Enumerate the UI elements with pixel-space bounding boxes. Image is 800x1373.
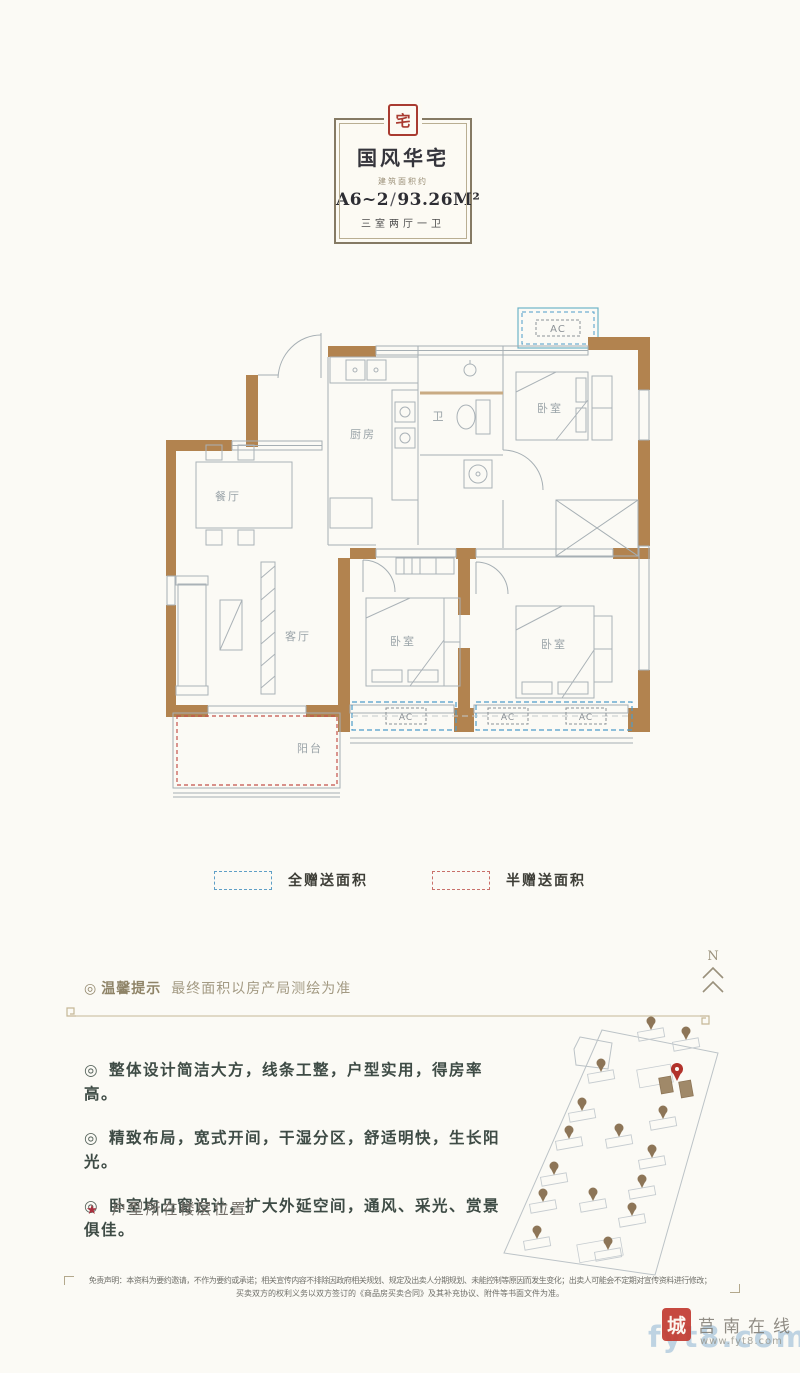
legend-item-full-gift: 全赠送面积	[214, 870, 368, 890]
header-card: 宅 国风华宅 建筑面积约 A6~2/93.26M² 三室两厅一卫	[334, 118, 472, 244]
floorplan-poster: 宅 国风华宅 建筑面积约 A6~2/93.26M² 三室两厅一卫 AC	[0, 0, 800, 1373]
watermark-seal-icon: 城	[662, 1308, 691, 1341]
highlighted-building	[659, 1076, 694, 1098]
header-card-inner-border	[339, 123, 467, 239]
ac-label-1: AC	[399, 713, 413, 723]
floorplan-drawing: AC	[158, 300, 658, 800]
site-plan	[490, 1015, 742, 1277]
room-label-kitchen: 厨房	[350, 428, 376, 441]
seal-icon: 宅	[388, 104, 418, 136]
feature-text-2: 精致布局，宽式开间，干湿分区，舒适明快，生长阳光。	[84, 1128, 500, 1171]
ac-label-2: AC	[501, 713, 515, 723]
warm-tip: ◎温馨提示最终面积以房产局测绘为准	[84, 978, 351, 998]
watermark-site-url: www.fyt8.com	[700, 1336, 783, 1347]
feature-text-1: 整体设计简洁大方，线条工整，户型实用，得房率高。	[84, 1060, 483, 1103]
disclaimer-line-1: 免责声明：本资料为要约邀请，不作为要约或承诺；相关宣传内容不排除因政府相关规划、…	[40, 1274, 760, 1287]
structure-lines	[167, 333, 649, 797]
feature-bullet-icon: ◎	[84, 1129, 99, 1147]
feature-item: ◎精致布局，宽式开间，干湿分区，舒适明快，生长阳光。	[84, 1126, 504, 1173]
feature-bullet-icon: ◎	[84, 1061, 99, 1079]
floor-location-caption: ★户型所在楼层位置	[86, 1198, 248, 1219]
room-label-bath: 卫	[433, 410, 446, 423]
room-label-bedroom2: 卧室	[390, 634, 416, 648]
tip-title: 温馨提示	[101, 981, 161, 997]
legend: 全赠送面积 半赠送面积	[0, 870, 800, 890]
watermark: fyt8.com 城 莒南在线 www.fyt8.com	[652, 1292, 800, 1373]
feature-item: ◎整体设计简洁大方，线条工整，户型实用，得房率高。	[84, 1058, 504, 1105]
star-icon: ★	[86, 1203, 100, 1218]
legend-label: 半赠送面积	[506, 870, 586, 890]
room-label-bedroom1: 卧室	[537, 401, 563, 415]
north-arrow-icon: N	[698, 946, 728, 1004]
legend-label: 全赠送面积	[288, 870, 368, 890]
watermark-site-name: 莒南在线	[698, 1312, 798, 1337]
ac-label-3: AC	[579, 713, 593, 723]
tip-bullet-icon: ◎	[84, 981, 97, 997]
room-label-living: 客厅	[285, 629, 311, 643]
svg-text:AC: AC	[550, 324, 566, 335]
room-label-balcony: 阳台	[297, 741, 323, 755]
floor-location-label: 户型所在楼层位置	[112, 1200, 248, 1218]
compass-label: N	[707, 949, 718, 964]
full-gift-swatch-icon	[214, 871, 272, 890]
ac-unit-top: AC	[518, 308, 598, 348]
tip-text: 最终面积以房产局测绘为准	[171, 981, 351, 997]
feature-list: ◎整体设计简洁大方，线条工整，户型实用，得房率高。 ◎精致布局，宽式开间，干湿分…	[84, 1058, 504, 1262]
room-label-bedroom3: 卧室	[541, 637, 567, 651]
half-gift-swatch-icon	[432, 871, 490, 890]
legend-item-half-gift: 半赠送面积	[432, 870, 586, 890]
site-buildings	[524, 1028, 700, 1261]
room-label-dining: 餐厅	[215, 489, 241, 503]
